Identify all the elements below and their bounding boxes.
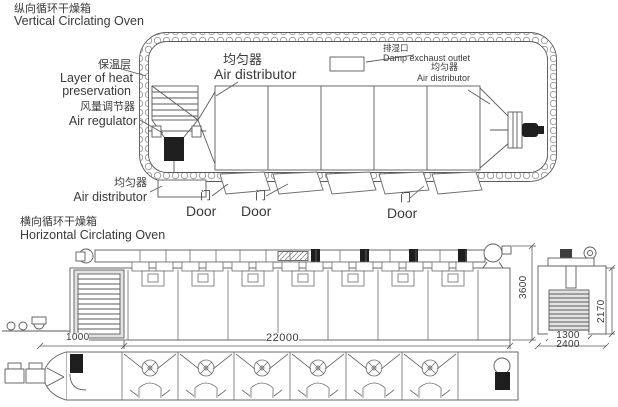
dimension-22000: 22000	[266, 333, 299, 345]
dimension-3600: 3600	[519, 267, 530, 307]
bottom-air-distributor-box	[158, 180, 206, 197]
dimension-2400: 2400	[548, 340, 588, 351]
door2-label-zh: 门	[255, 191, 266, 203]
air-distributor-right-label-zh: 均匀器	[431, 63, 458, 72]
door3-label-en: Door	[387, 206, 417, 221]
horizontal-oven-title-zh: 横向循环干燥箱	[20, 217, 97, 229]
horizontal-oven-title-en: Horizontal Circlating Oven	[20, 229, 165, 242]
damp-outlet-label-zh: 排湿口	[383, 44, 409, 53]
insulation-label-zh: 保温层	[5, 60, 131, 72]
technical-diagram: 纵向循环干燥箱 Vertical Circlating Oven 保温层 Lay…	[0, 0, 618, 407]
vertical-oven-drawing	[118, 33, 557, 199]
damp-exhaust-outlet-box	[330, 57, 364, 71]
air-distributor-left-label-en: Air distributor	[5, 191, 147, 204]
air-distributor-left-label-zh: 均匀器	[5, 178, 147, 190]
oven-body-elevation	[70, 250, 510, 340]
door1-label-zh: 门	[200, 191, 211, 203]
door2-label-en: Door	[241, 204, 271, 219]
left-fan-assembly	[148, 86, 215, 172]
air-distributor-right-label-en: Air distributor	[417, 74, 470, 83]
insulation-label-en2: preservation	[5, 85, 131, 98]
drying-chambers	[215, 86, 480, 170]
air-regulator-label-zh: 风量调节器	[5, 102, 135, 114]
air-distributor-mid-label-en: Air distributor	[214, 67, 296, 82]
dimension-1000: 1000	[66, 333, 89, 344]
door3-label-zh: 门	[400, 193, 411, 205]
oven-plan-view	[43, 352, 518, 400]
air-distributor-mid-label-zh: 均匀器	[223, 53, 262, 67]
dimension-2170: 2170	[597, 291, 608, 331]
trolley	[2, 317, 70, 331]
door1-label-en: Door	[186, 204, 216, 219]
air-regulator-label-en: Air regulator	[5, 115, 137, 128]
vertical-oven-title-en: Vertical Circlating Oven	[14, 15, 144, 28]
right-fan-assembly	[480, 88, 544, 168]
